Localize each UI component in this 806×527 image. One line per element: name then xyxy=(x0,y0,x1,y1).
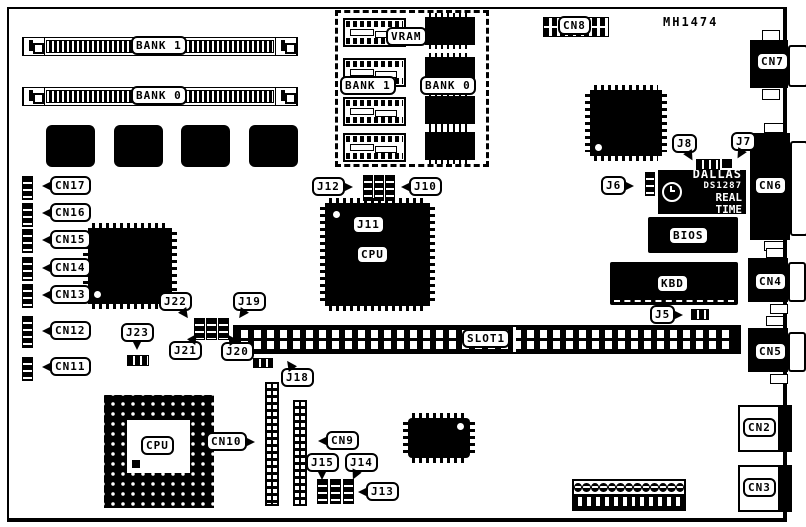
jumper-j13-callout: J13 xyxy=(366,482,399,501)
jumper-j23-pins xyxy=(127,355,149,366)
jumper-j5-callout: J5 xyxy=(650,305,675,324)
jumper-j6-pins xyxy=(645,172,655,196)
cpu-pga-socket: CPU xyxy=(104,395,214,508)
screw-row xyxy=(574,481,684,494)
connector-cn11-pins xyxy=(22,357,33,381)
cn10-callout: CN10 xyxy=(206,432,247,451)
ic-chip xyxy=(590,90,662,156)
cn13-callout: CN13 xyxy=(50,285,91,304)
cn3-label: CN3 xyxy=(743,478,776,497)
connector-cn17-pins xyxy=(22,176,33,200)
jumper-j11-pins xyxy=(374,175,384,201)
cn11-callout: CN11 xyxy=(50,357,91,376)
simm-end-clip xyxy=(275,88,297,105)
vram-chip xyxy=(425,132,475,160)
cn12-callout: CN12 xyxy=(50,321,91,340)
rtc-type: REAL TIME xyxy=(685,192,742,216)
jumper-j22-callout: J22 xyxy=(159,292,192,311)
connector-cn3: CN3 xyxy=(738,465,792,512)
connector-cn5: CN5 xyxy=(746,316,804,384)
clock-icon xyxy=(662,182,682,202)
jumper-j7-callout: J7 xyxy=(731,132,756,151)
cpu-qfp-label: CPU xyxy=(356,245,389,264)
jumper-j18-pins xyxy=(253,358,273,368)
vram-dip-socket xyxy=(343,97,406,126)
connector-cn10-pins xyxy=(265,382,279,506)
rtc-chip: DALLAS DS1287 REAL TIME xyxy=(658,170,746,214)
cn14-callout: CN14 xyxy=(50,258,91,277)
motherboard-diagram: MH1474 BANK 1 BANK 0 VRAM BANK 1 BANK 0 … xyxy=(0,0,806,527)
connector-cn2: CN2 xyxy=(738,405,792,452)
slot1-connector: SLOT1 xyxy=(233,325,741,354)
memory-chip xyxy=(46,125,95,167)
cpu-pga-label: CPU xyxy=(141,436,174,455)
terminal-holes-row xyxy=(574,494,684,509)
bank1-label: BANK 1 xyxy=(131,36,187,55)
simm-end-clip xyxy=(23,38,45,55)
connector-cn14-pins xyxy=(22,257,33,281)
connector-cn6: CN6 xyxy=(748,120,806,252)
jumper-j10-pins xyxy=(385,175,395,201)
jumper-j12-pins xyxy=(363,175,373,201)
cn9-callout: CN9 xyxy=(326,431,359,450)
jumper-j19-callout: J19 xyxy=(233,292,266,311)
part-number-label: MH1474 xyxy=(663,15,718,29)
simm-end-clip xyxy=(275,38,297,55)
vram-dip-socket xyxy=(343,133,406,162)
jumper-j14-callout: J14 xyxy=(345,453,378,472)
memory-chip xyxy=(249,125,298,167)
connector-cn9-pins xyxy=(293,400,307,506)
connector-cn16-pins xyxy=(22,203,33,227)
jumper-j14-pins xyxy=(330,479,341,504)
vram-chip xyxy=(425,17,475,45)
jumper-j8-pins xyxy=(696,159,720,170)
cn8-label: CN8 xyxy=(558,16,591,35)
kbd-label: KBD xyxy=(656,274,689,293)
vram-bank1-label: BANK 1 xyxy=(340,76,396,95)
cn17-callout: CN17 xyxy=(50,176,91,195)
jumper-j23-callout: J23 xyxy=(121,323,154,342)
jumper-j15-callout: J15 xyxy=(306,453,339,472)
cn15-callout: CN15 xyxy=(50,230,91,249)
jumper-j20-callout: J20 xyxy=(221,342,254,361)
simm-slot-bank1: BANK 1 xyxy=(22,37,298,56)
memory-chip xyxy=(114,125,163,167)
cn5-label: CN5 xyxy=(754,342,787,361)
kbd-pin-row xyxy=(614,300,734,302)
slot-key-notch xyxy=(513,327,516,352)
bios-label: BIOS xyxy=(668,226,709,245)
jumper-j10-callout: J10 xyxy=(409,177,442,196)
cn16-callout: CN16 xyxy=(50,203,91,222)
jumper-j12-callout: J12 xyxy=(312,177,345,196)
connector-cn4: CN4 xyxy=(746,248,804,314)
terminal-block xyxy=(572,479,686,511)
memory-chip xyxy=(181,125,230,167)
jumper-j5-pins xyxy=(691,309,709,320)
cn2-label: CN2 xyxy=(743,418,776,437)
slot1-label: SLOT1 xyxy=(462,329,510,348)
jumper-j21-pins xyxy=(206,318,217,340)
pga-cavity: CPU xyxy=(127,420,190,473)
jumper-j8-callout: J8 xyxy=(672,134,697,153)
cn7-label: CN7 xyxy=(756,52,789,71)
connector-cn7: CN7 xyxy=(748,30,806,100)
jumper-j11-callout: J11 xyxy=(352,215,385,234)
jumper-j21-callout: J21 xyxy=(169,341,202,360)
jumper-j18-callout: J18 xyxy=(281,368,314,387)
cn6-label: CN6 xyxy=(754,176,787,195)
pin1-marker xyxy=(132,460,140,468)
vram-label: VRAM xyxy=(386,27,427,46)
connector-cn15-pins xyxy=(22,229,33,253)
jumper-j15-pins xyxy=(317,479,328,504)
simm-slot-bank0: BANK 0 xyxy=(22,87,298,106)
jumper-j13-pins xyxy=(343,479,354,504)
bank0-label: BANK 0 xyxy=(131,86,187,105)
cn4-label: CN4 xyxy=(754,272,787,291)
connector-cn13-pins xyxy=(22,284,33,308)
simm-end-clip xyxy=(23,88,45,105)
jumper-j7-pins xyxy=(722,159,732,168)
jumper-j6-callout: J6 xyxy=(601,176,626,195)
vram-chip xyxy=(425,96,475,124)
vram-bank0-label: BANK 0 xyxy=(420,76,476,95)
ic-chip xyxy=(408,418,470,458)
ic-chip xyxy=(88,228,172,304)
connector-cn12-pins xyxy=(22,316,33,348)
